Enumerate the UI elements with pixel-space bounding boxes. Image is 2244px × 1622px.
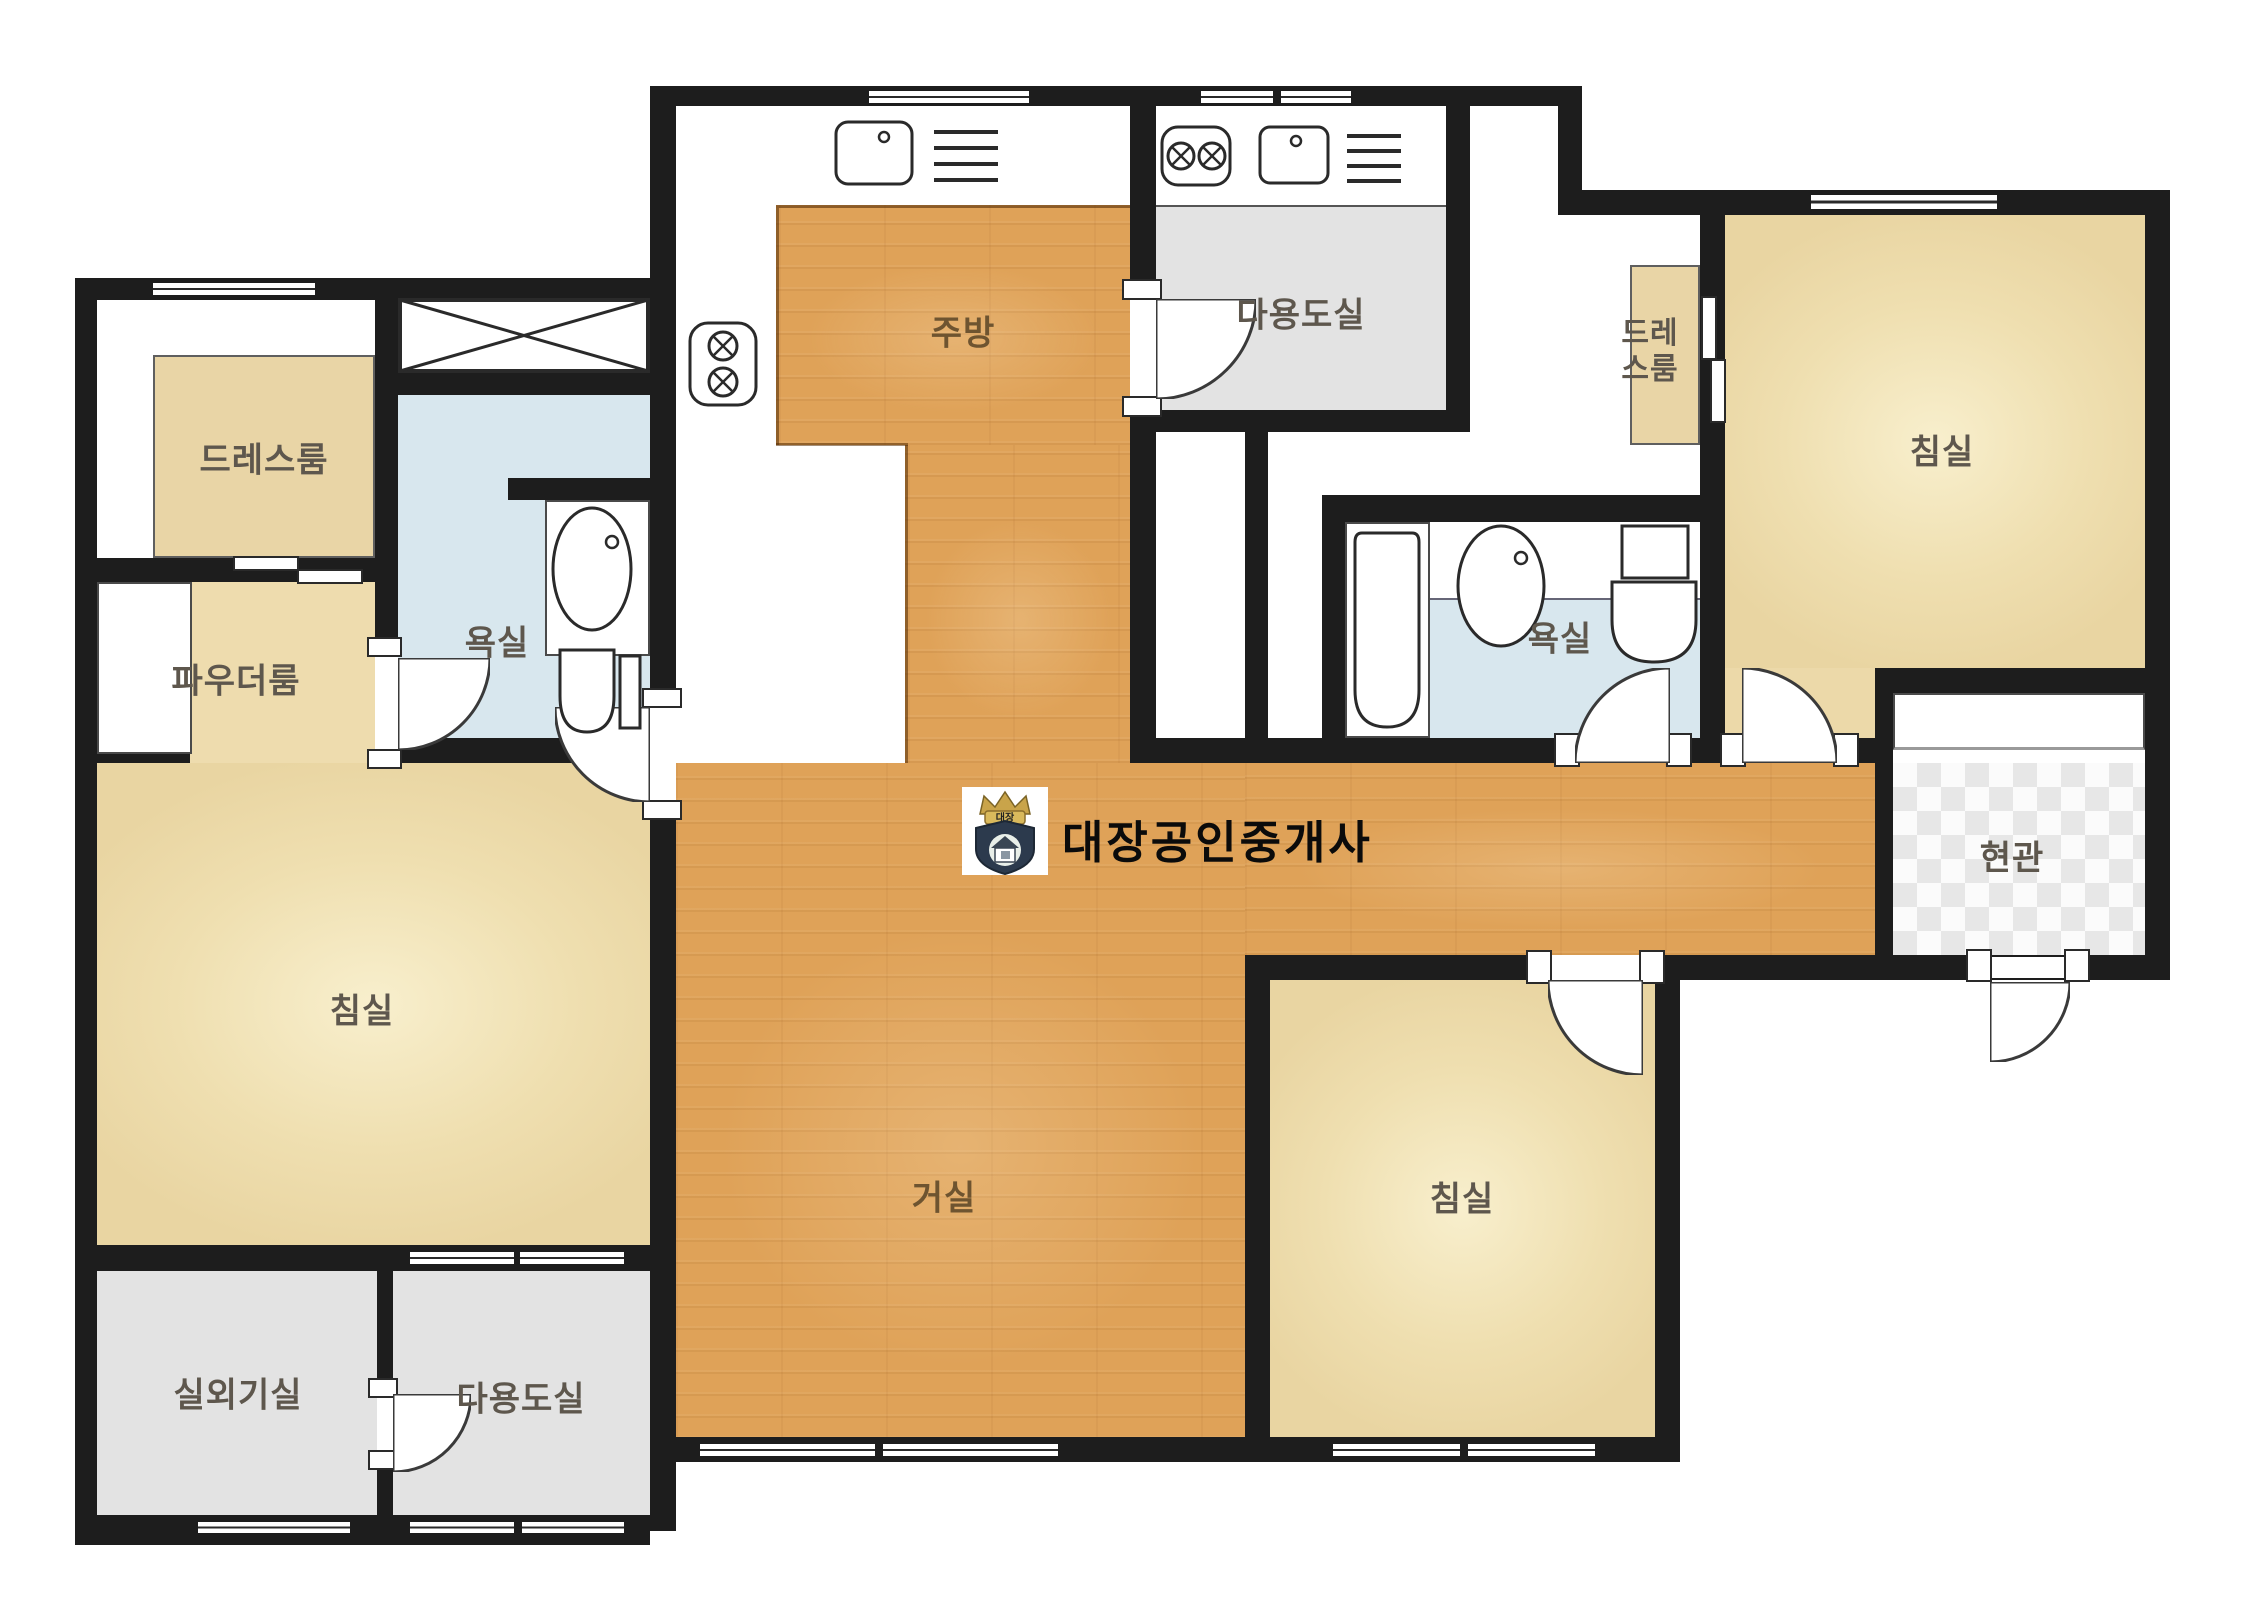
window	[1465, 1441, 1598, 1459]
toilet-icon	[556, 646, 644, 736]
wall	[375, 373, 650, 395]
sliding-door-panel	[233, 556, 299, 571]
window	[1198, 88, 1276, 106]
sliding-door-panel	[1710, 359, 1726, 423]
door-opening	[1130, 299, 1156, 397]
door-jamb	[1122, 279, 1162, 300]
bathtub-icon	[1352, 530, 1422, 730]
kitchen-sink-icon	[1258, 125, 1330, 185]
room-label-bathroom-right: 욕실	[1528, 612, 1593, 661]
window	[407, 1519, 517, 1536]
dish-rack-icon	[1343, 130, 1405, 192]
wall	[1322, 495, 1345, 763]
door-opening	[377, 1396, 393, 1452]
door-jamb	[367, 637, 402, 657]
door-swing-bedroom-right	[1742, 668, 1837, 763]
powder-passage-floor	[190, 738, 375, 763]
room-label-dressroom-left: 드레스룸	[199, 433, 328, 482]
room-label-dressroom-right: 드레스룸	[1616, 316, 1684, 388]
door-jamb	[2064, 949, 2090, 982]
door-opening	[375, 655, 398, 751]
window	[519, 1519, 627, 1536]
window	[517, 1249, 627, 1267]
kitchen-floor-lower	[905, 445, 1130, 763]
toilet-icon	[1608, 524, 1700, 666]
room-label-utility-bottom: 다용도실	[456, 1372, 585, 1421]
room-label-living-room: 거실	[912, 1171, 977, 1220]
window	[1278, 88, 1354, 106]
wall	[1322, 495, 1700, 522]
door-jamb	[1639, 950, 1665, 984]
window	[880, 1441, 1061, 1459]
sliding-door-panel	[1701, 296, 1717, 360]
door-swing-bathroom-left	[398, 658, 490, 750]
bathroom-partition-stub	[508, 478, 650, 500]
wall	[1245, 432, 1268, 763]
room-label-outdoor-unit: 실외기실	[173, 1368, 302, 1417]
room-label-powder-room: 파우더룸	[171, 654, 300, 703]
room-label-bedroom-right: 침실	[1910, 425, 1975, 474]
door-jamb	[642, 800, 682, 820]
door-opening	[1990, 957, 2066, 978]
door-swing-entrance	[1990, 982, 2070, 1062]
room-label-bedroom-left: 침실	[330, 984, 395, 1033]
gas-stove-icon	[1160, 125, 1232, 187]
window	[1808, 192, 2000, 212]
door-jamb	[1526, 950, 1552, 984]
door-jamb	[1966, 949, 1992, 982]
washbasin-icon	[550, 504, 634, 634]
window	[150, 280, 318, 298]
window	[407, 1249, 517, 1267]
door-swing-bedroom-bottom	[1548, 980, 1643, 1075]
door-opening	[650, 707, 676, 802]
storage-closet-x-icon	[398, 298, 650, 373]
room-label-utility-top: 다용도실	[1236, 288, 1365, 337]
room-label-bedroom-bottom: 침실	[1430, 1172, 1495, 1221]
wall	[1655, 955, 1680, 1460]
watermark-brand-text: 대장공인중개사	[1062, 806, 1373, 871]
door-opening	[1550, 955, 1641, 980]
door-swing-bathroom-right	[1575, 668, 1670, 763]
window	[1330, 1441, 1463, 1459]
dish-rack-icon	[928, 126, 1004, 190]
wall	[1700, 215, 1725, 748]
window	[697, 1441, 878, 1459]
wall	[1130, 106, 1156, 763]
floor-plan: 드레스룸 파우더룸 욕실 침실 실외기실 다용도실 주방 거실 다용도실 드레스…	[0, 0, 2244, 1622]
gas-stove-icon	[688, 321, 758, 407]
brand-logo-icon: 대장	[962, 787, 1048, 875]
window	[195, 1519, 353, 1536]
shoe-cabinet	[1893, 693, 2145, 750]
door-jamb	[367, 749, 402, 769]
door-jamb	[642, 688, 682, 708]
wall	[1446, 86, 1470, 432]
wall	[1245, 955, 1270, 1460]
wall	[650, 86, 1582, 106]
wall	[75, 278, 97, 1545]
wall	[1130, 410, 1470, 432]
room-label-entrance: 현관	[1980, 831, 2045, 880]
door-jamb	[1122, 396, 1162, 417]
wall	[1875, 668, 2170, 693]
window	[866, 88, 1032, 106]
wall	[1875, 668, 1893, 980]
room-label-bathroom-left: 욕실	[465, 616, 530, 665]
sliding-door-panel	[297, 569, 363, 584]
wall	[2145, 190, 2170, 980]
room-label-kitchen: 주방	[931, 306, 996, 355]
kitchen-floor-step-line	[776, 443, 908, 446]
kitchen-sink-icon	[834, 120, 914, 186]
